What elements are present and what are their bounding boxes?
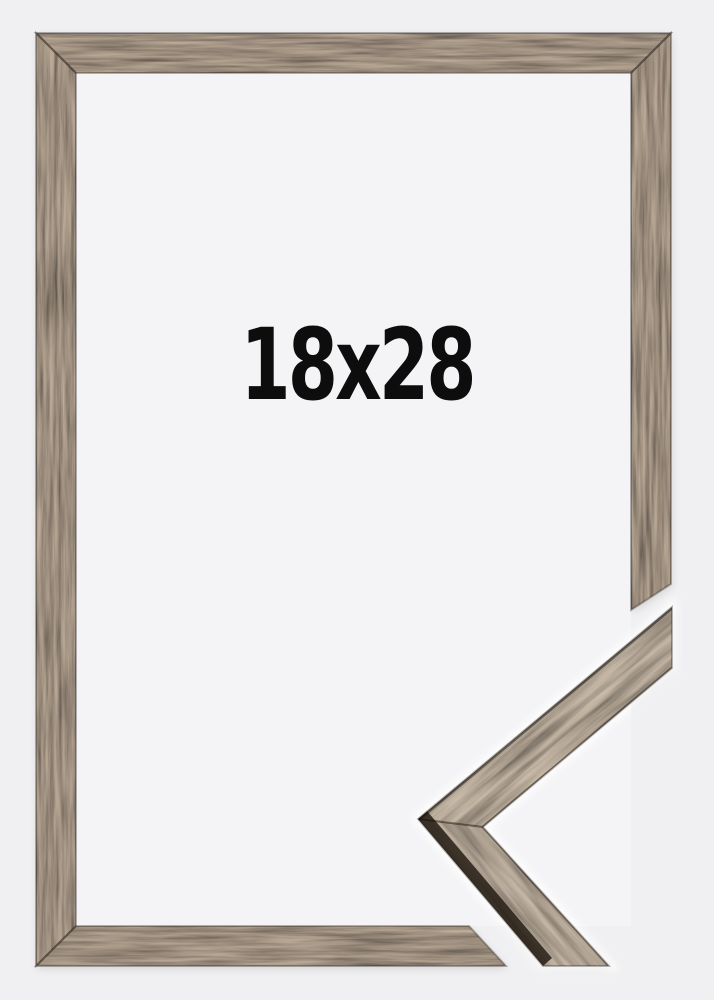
product-photo: 18x28 xyxy=(0,0,714,1000)
frame-opening xyxy=(76,73,631,926)
frame-border-bottom xyxy=(36,926,506,966)
frame-illustration xyxy=(0,0,714,1000)
size-label: 18x28 xyxy=(96,316,617,415)
frame-border-left xyxy=(36,33,76,966)
frame-border-top xyxy=(36,33,671,73)
frame-border-right xyxy=(631,33,671,610)
